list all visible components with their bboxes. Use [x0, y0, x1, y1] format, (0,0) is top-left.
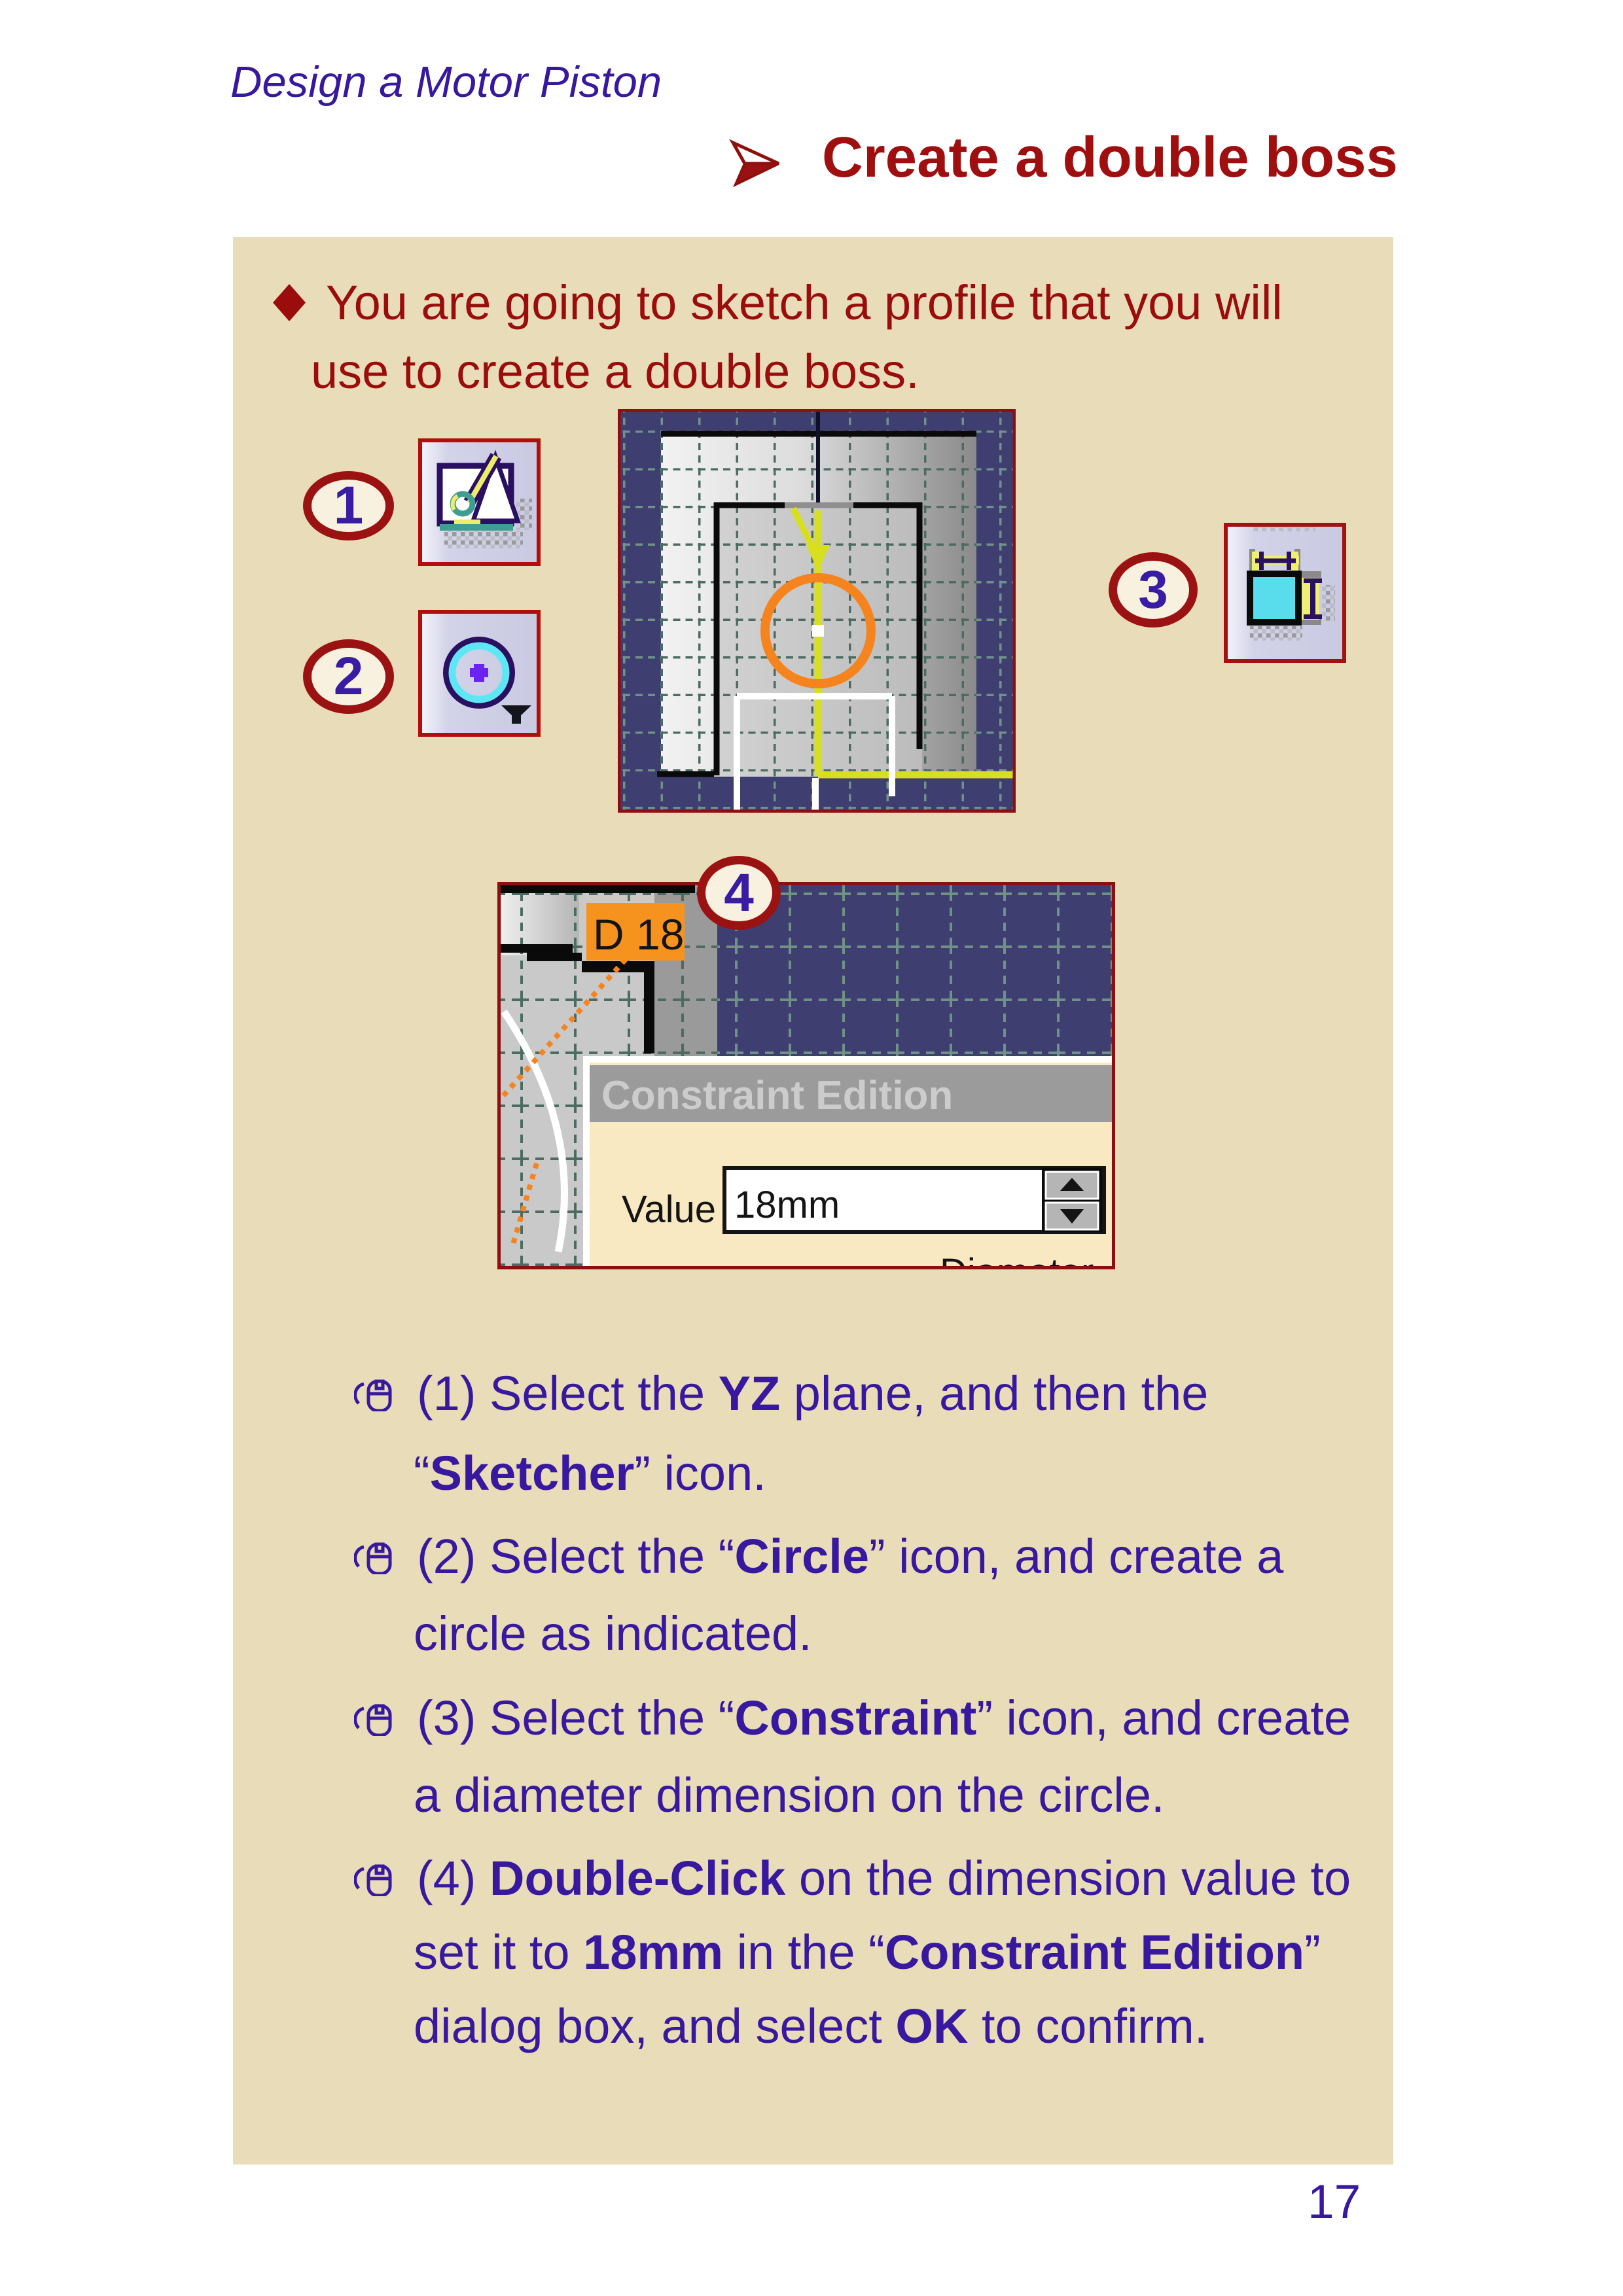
svg-text:Value: Value — [622, 1188, 716, 1231]
svg-text:18mm: 18mm — [734, 1184, 840, 1226]
svg-text:D 18: D 18 — [593, 910, 684, 959]
svg-text:Constraint Edition: Constraint Edition — [601, 1073, 953, 1118]
